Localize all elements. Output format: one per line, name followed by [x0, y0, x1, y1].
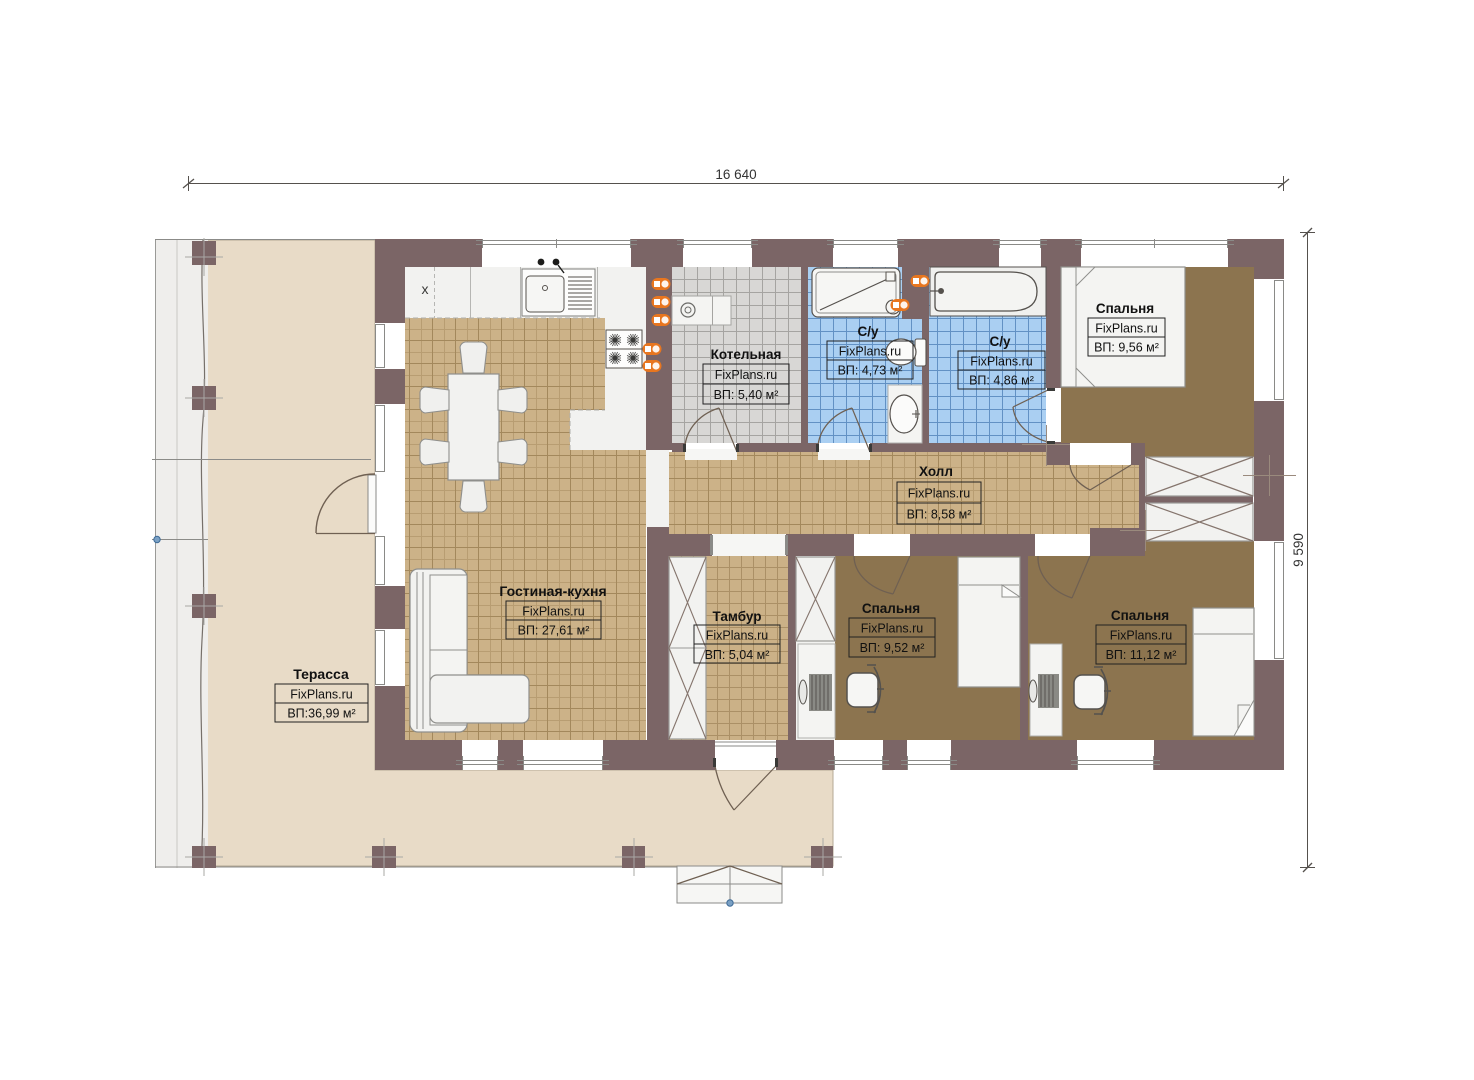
svg-text:9 590: 9 590 [1291, 533, 1306, 567]
svg-text:ВП: 9,56 м²: ВП: 9,56 м² [1094, 341, 1159, 355]
svg-text:FixPlans.ru: FixPlans.ru [908, 487, 971, 501]
svg-text:FixPlans.ru: FixPlans.ru [715, 368, 778, 382]
svg-text:ВП: 4,73 м²: ВП: 4,73 м² [838, 364, 903, 378]
svg-text:ВП: 27,61 м²: ВП: 27,61 м² [518, 624, 590, 638]
svg-text:ВП: 5,40 м²: ВП: 5,40 м² [714, 388, 779, 402]
svg-text:FixPlans.ru: FixPlans.ru [970, 355, 1033, 369]
svg-text:С/у: С/у [989, 334, 1011, 349]
svg-text:FixPlans.ru: FixPlans.ru [290, 688, 353, 702]
svg-text:Холл: Холл [919, 464, 953, 479]
svg-text:Спальня: Спальня [1111, 608, 1169, 623]
svg-text:FixPlans.ru: FixPlans.ru [1095, 322, 1158, 336]
svg-text:ВП: 5,04 м²: ВП: 5,04 м² [705, 648, 770, 662]
svg-text:Спальня: Спальня [1096, 301, 1154, 316]
svg-text:FixPlans.ru: FixPlans.ru [706, 629, 769, 643]
svg-text:ВП:36,99 м²: ВП:36,99 м² [287, 707, 355, 721]
svg-text:Гостиная-кухня: Гостиная-кухня [499, 583, 606, 599]
svg-text:Тамбур: Тамбур [713, 609, 762, 624]
svg-text:16 640: 16 640 [715, 167, 756, 182]
svg-text:Котельная: Котельная [711, 347, 782, 362]
svg-text:ВП: 9,52 м²: ВП: 9,52 м² [860, 641, 925, 655]
svg-text:FixPlans.ru: FixPlans.ru [861, 622, 924, 636]
svg-text:ВП: 8,58 м²: ВП: 8,58 м² [907, 508, 972, 522]
svg-text:С/у: С/у [857, 324, 879, 339]
svg-text:Терасса: Терасса [293, 666, 349, 682]
svg-text:ВП: 4,86 м²: ВП: 4,86 м² [969, 374, 1034, 388]
svg-text:FixPlans.ru: FixPlans.ru [522, 605, 585, 619]
svg-text:Спальня: Спальня [862, 601, 920, 616]
svg-text:x: x [422, 281, 429, 297]
svg-text:ВП: 11,12 м²: ВП: 11,12 м² [1106, 648, 1177, 662]
svg-text:FixPlans.ru: FixPlans.ru [839, 345, 902, 359]
svg-text:FixPlans.ru: FixPlans.ru [1110, 629, 1173, 643]
